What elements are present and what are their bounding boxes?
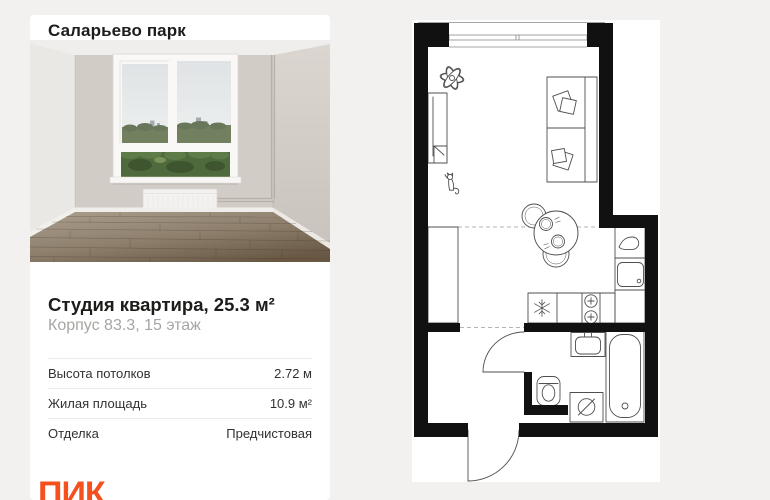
room-photo-scene [30,40,330,262]
spec-label: Отделка [48,426,99,441]
project-title: Саларьево парк [48,21,186,41]
apartment-subtitle: Корпус 83.3, 15 этаж [48,317,201,335]
dining-table [534,211,578,255]
spec-value: 2.72 м [274,366,312,381]
floor-plan-drawing [412,20,660,482]
spec-value: Предчистовая [226,426,312,441]
spec-row-ceiling-height: Высота потолков 2.72 м [48,358,312,388]
listing-card[interactable]: Саларьево парк [30,15,330,500]
baseboard-back [75,208,273,213]
apartment-title: Студия квартира, 25.3 м² [48,294,275,316]
sofa [547,77,597,182]
spec-label: Высота потолков [48,366,151,381]
spec-row-living-area: Жилая площадь 10.9 м² [48,388,312,418]
spec-value: 10.9 м² [270,396,312,411]
room-photo [30,40,330,262]
window [110,54,241,185]
left-wall [30,43,75,237]
floor-plan [412,20,660,482]
socket [282,203,287,207]
spec-label: Жилая площадь [48,396,147,411]
spec-row-finish: Отделка Предчистовая [48,418,312,448]
spec-table: Высота потолков 2.72 м Жилая площадь 10.… [48,358,312,448]
pik-brand-logo: ПИК [38,475,105,500]
